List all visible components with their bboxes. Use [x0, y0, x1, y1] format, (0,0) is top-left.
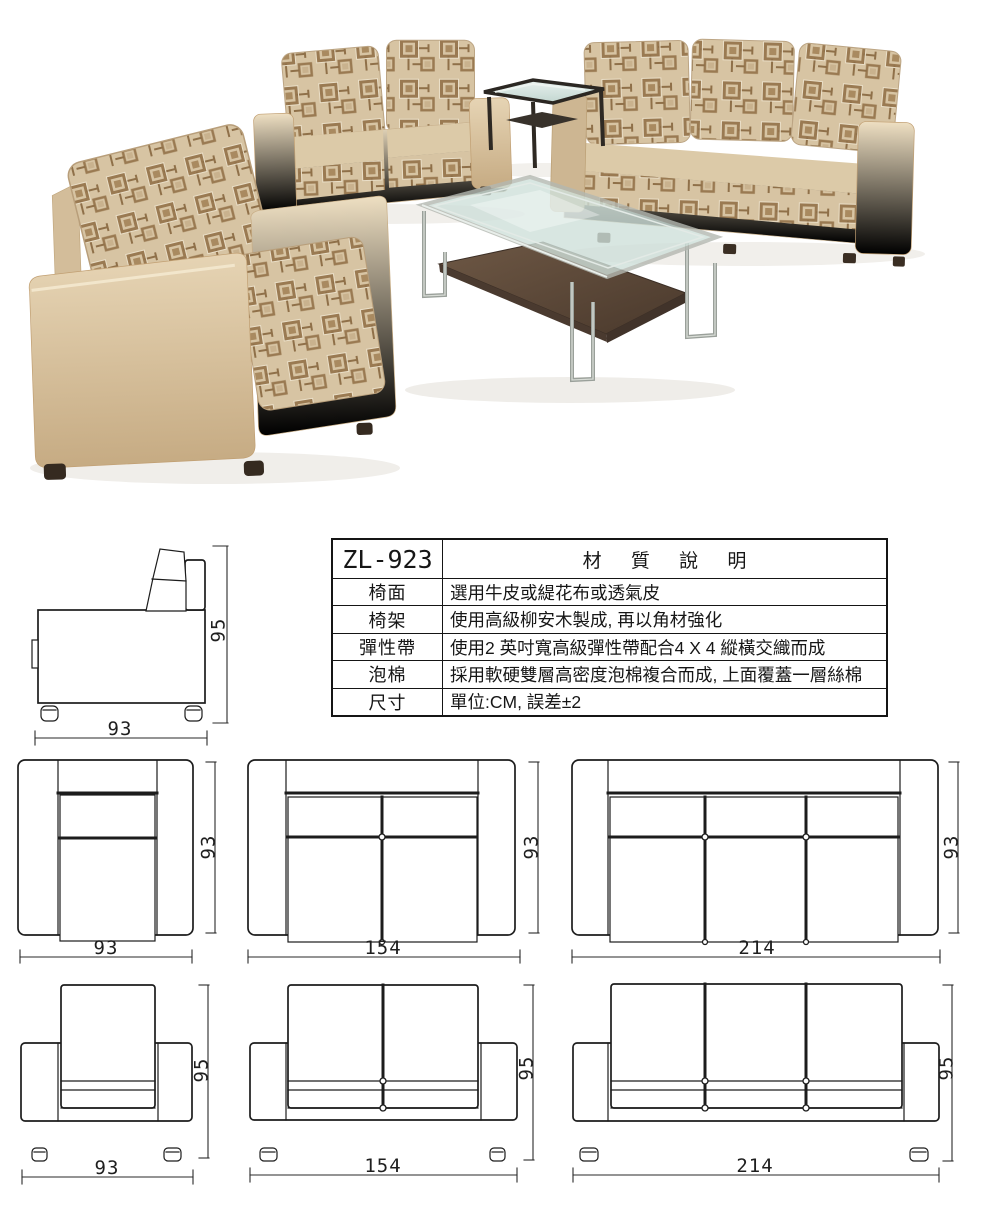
- dim-width-label: 154: [364, 937, 401, 959]
- top-view-2seat-drawing: 93 154: [243, 752, 543, 964]
- row-label: 椅架: [333, 606, 443, 632]
- catalog-page: 95 93 ZL-923 材 質 說 明 椅面 選用牛皮或緹花布或透氣皮 椅架 …: [0, 0, 1000, 1211]
- dim-height-label: 93: [941, 835, 963, 860]
- dim-height-label: 95: [936, 1056, 958, 1081]
- product-photo: [0, 0, 1000, 525]
- row-label: 椅面: [333, 579, 443, 605]
- table-header-row: ZL-923 材 質 說 明: [333, 540, 886, 578]
- front-view-1seat-drawing: 95 93: [10, 975, 230, 1190]
- row-value: 使用2 英吋寬高級彈性帶配合4 X 4 縱橫交織而成: [443, 634, 886, 660]
- top-view-1seat-drawing: 93 93: [10, 752, 230, 964]
- dim-height-label: 95: [516, 1056, 538, 1081]
- front-view-3seat-drawing: 95 214: [565, 975, 975, 1190]
- front-view-2seat-drawing: 95 154: [243, 975, 543, 1190]
- dim-width-label: 214: [738, 937, 775, 959]
- row-value: 選用牛皮或緹花布或透氣皮: [443, 579, 886, 605]
- dim-height-label: 93: [198, 835, 220, 860]
- table-row: 彈性帶 使用2 英吋寬高級彈性帶配合4 X 4 縱橫交織而成: [333, 633, 886, 660]
- side-view-height-label: 95: [208, 618, 230, 643]
- model-number: ZL-923: [333, 540, 443, 578]
- table-title: 材 質 說 明: [443, 540, 886, 578]
- row-value: 單位:CM, 誤差±2: [443, 689, 886, 715]
- side-view-width-label: 93: [108, 718, 133, 740]
- dim-width-label: 214: [736, 1155, 773, 1177]
- row-label: 泡棉: [333, 661, 443, 687]
- top-view-3seat-drawing: 93 214: [565, 752, 975, 964]
- dim-width-label: 154: [364, 1155, 401, 1177]
- table-row: 椅架 使用高級柳安木製成, 再以角材強化: [333, 605, 886, 632]
- table-row: 尺寸 單位:CM, 誤差±2: [333, 688, 886, 715]
- dim-height-label: 95: [191, 1058, 213, 1083]
- table-row: 椅面 選用牛皮或緹花布或透氣皮: [333, 578, 886, 605]
- dim-width-label: 93: [94, 937, 119, 959]
- dim-height-label: 93: [521, 835, 543, 860]
- row-label: 彈性帶: [333, 634, 443, 660]
- row-label: 尺寸: [333, 689, 443, 715]
- dim-width-label: 93: [95, 1157, 120, 1179]
- row-value: 使用高級柳安木製成, 再以角材強化: [443, 606, 886, 632]
- material-spec-table: ZL-923 材 質 說 明 椅面 選用牛皮或緹花布或透氣皮 椅架 使用高級柳安…: [331, 538, 888, 717]
- side-view-drawing: 95 93: [10, 533, 240, 748]
- table-row: 泡棉 採用軟硬雙層高密度泡棉複合而成, 上面覆蓋一層絲棉: [333, 660, 886, 687]
- row-value: 採用軟硬雙層高密度泡棉複合而成, 上面覆蓋一層絲棉: [443, 661, 886, 687]
